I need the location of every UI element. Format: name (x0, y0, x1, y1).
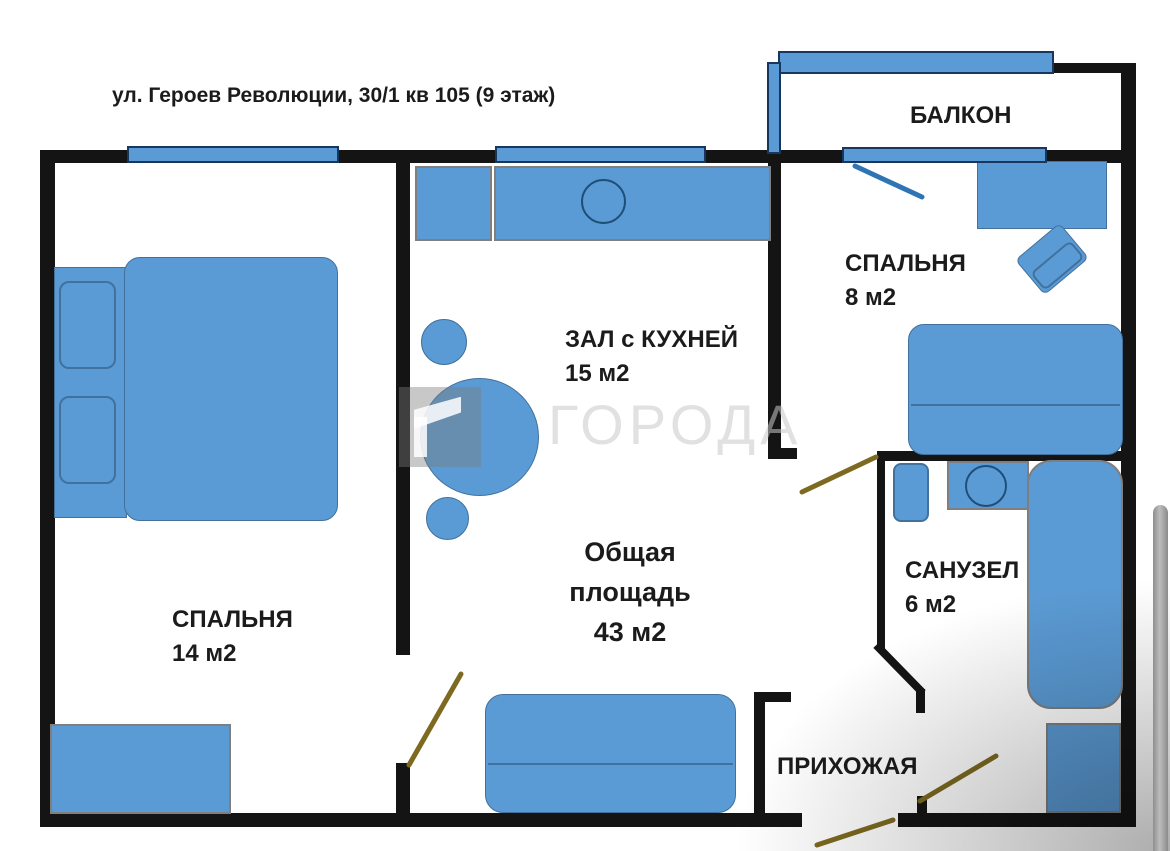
wall-outer-right (1121, 63, 1136, 827)
bathroom-angled-wall (879, 648, 920, 690)
label-total-line1: Общая (540, 532, 720, 572)
wall-outer-bottom-left (40, 813, 802, 827)
wall-bathroom-stub (916, 689, 925, 713)
bed-mattress (124, 257, 338, 521)
kitchen-counter (494, 166, 771, 241)
label-bathroom-name: САНУЗЕЛ (905, 554, 1019, 588)
label-bathroom: САНУЗЕЛ 6 м2 (905, 554, 1019, 622)
label-hall-kitchen: ЗАЛ с КУХНЕЙ 15 м2 (565, 323, 738, 391)
wall-bathroom-left (877, 451, 885, 649)
window-hall-kitchen (495, 146, 706, 163)
plan-title: ул. Героев Революции, 30/1 кв 105 (9 эта… (112, 84, 555, 108)
window-balcony-door (842, 147, 1047, 163)
bathtub (1027, 460, 1123, 709)
kitchen-stove (415, 166, 492, 241)
label-hallway: ПРИХОЖАЯ (777, 750, 918, 784)
bed-pillow-top (59, 281, 116, 369)
balcony-railing-window (778, 51, 1054, 74)
scrollbar-thumb[interactable] (1153, 505, 1168, 851)
label-bathroom-area: 6 м2 (905, 588, 1019, 622)
stool-top (421, 319, 467, 365)
label-total-area: Общая площадь 43 м2 (540, 532, 720, 652)
balcony-door-swing (855, 166, 922, 197)
desk-chair-seat (1031, 240, 1085, 291)
label-bedroom-large: СПАЛЬНЯ 14 м2 (172, 603, 293, 671)
label-bedroom-small-name: СПАЛЬНЯ (845, 247, 966, 281)
bedroom-large-door-swing (409, 674, 461, 765)
label-total-line2: площадь (540, 572, 720, 612)
wall-hallway-niche-vertical (754, 692, 765, 813)
desk (977, 161, 1107, 229)
goroda-watermark-logo-icon (399, 387, 481, 467)
washbasin-sink-icon (965, 465, 1007, 507)
wall-outer-bottom-right (898, 813, 1136, 827)
label-balcony: БАЛКОН (910, 99, 1011, 133)
wall-bedroom-large-lower (396, 763, 410, 813)
bedroom-small-sofa-seat-line (911, 404, 1120, 406)
dresser (50, 724, 231, 814)
entrance-door-swing-outer (817, 820, 893, 845)
stool-bottom (426, 497, 469, 540)
goroda-logo-pole-icon (414, 417, 427, 457)
label-hall-kitchen-area: 15 м2 (565, 357, 738, 391)
toilet (893, 463, 929, 522)
entrance-door-swing-inner (920, 756, 996, 801)
label-bedroom-small-area: 8 м2 (845, 281, 966, 315)
label-bedroom-large-area: 14 м2 (172, 637, 293, 671)
desk-chair (1015, 223, 1089, 296)
bed-pillow-bottom (59, 396, 116, 484)
floor-plan: ул. Героев Революции, 30/1 кв 105 (9 эта… (0, 0, 1170, 851)
balcony-side-window (767, 62, 781, 154)
hall-sofa-seat-line (488, 763, 733, 765)
hall-sofa (485, 694, 736, 813)
wall-hallway-niche-foot (754, 692, 791, 702)
label-hall-kitchen-name: ЗАЛ с КУХНЕЙ (565, 323, 738, 357)
goroda-watermark-text: ГОРОДА (548, 392, 802, 457)
label-bedroom-large-name: СПАЛЬНЯ (172, 603, 293, 637)
bedroom-small-sofa (908, 324, 1123, 455)
bedroom-small-door-swing (802, 457, 876, 492)
label-bedroom-small: СПАЛЬНЯ 8 м2 (845, 247, 966, 315)
window-bedroom-large (127, 146, 339, 163)
wall-entrance-jamb (917, 796, 927, 813)
washing-machine (1046, 723, 1121, 813)
label-total-line3: 43 м2 (540, 612, 720, 652)
kitchen-sink-icon (581, 179, 626, 224)
